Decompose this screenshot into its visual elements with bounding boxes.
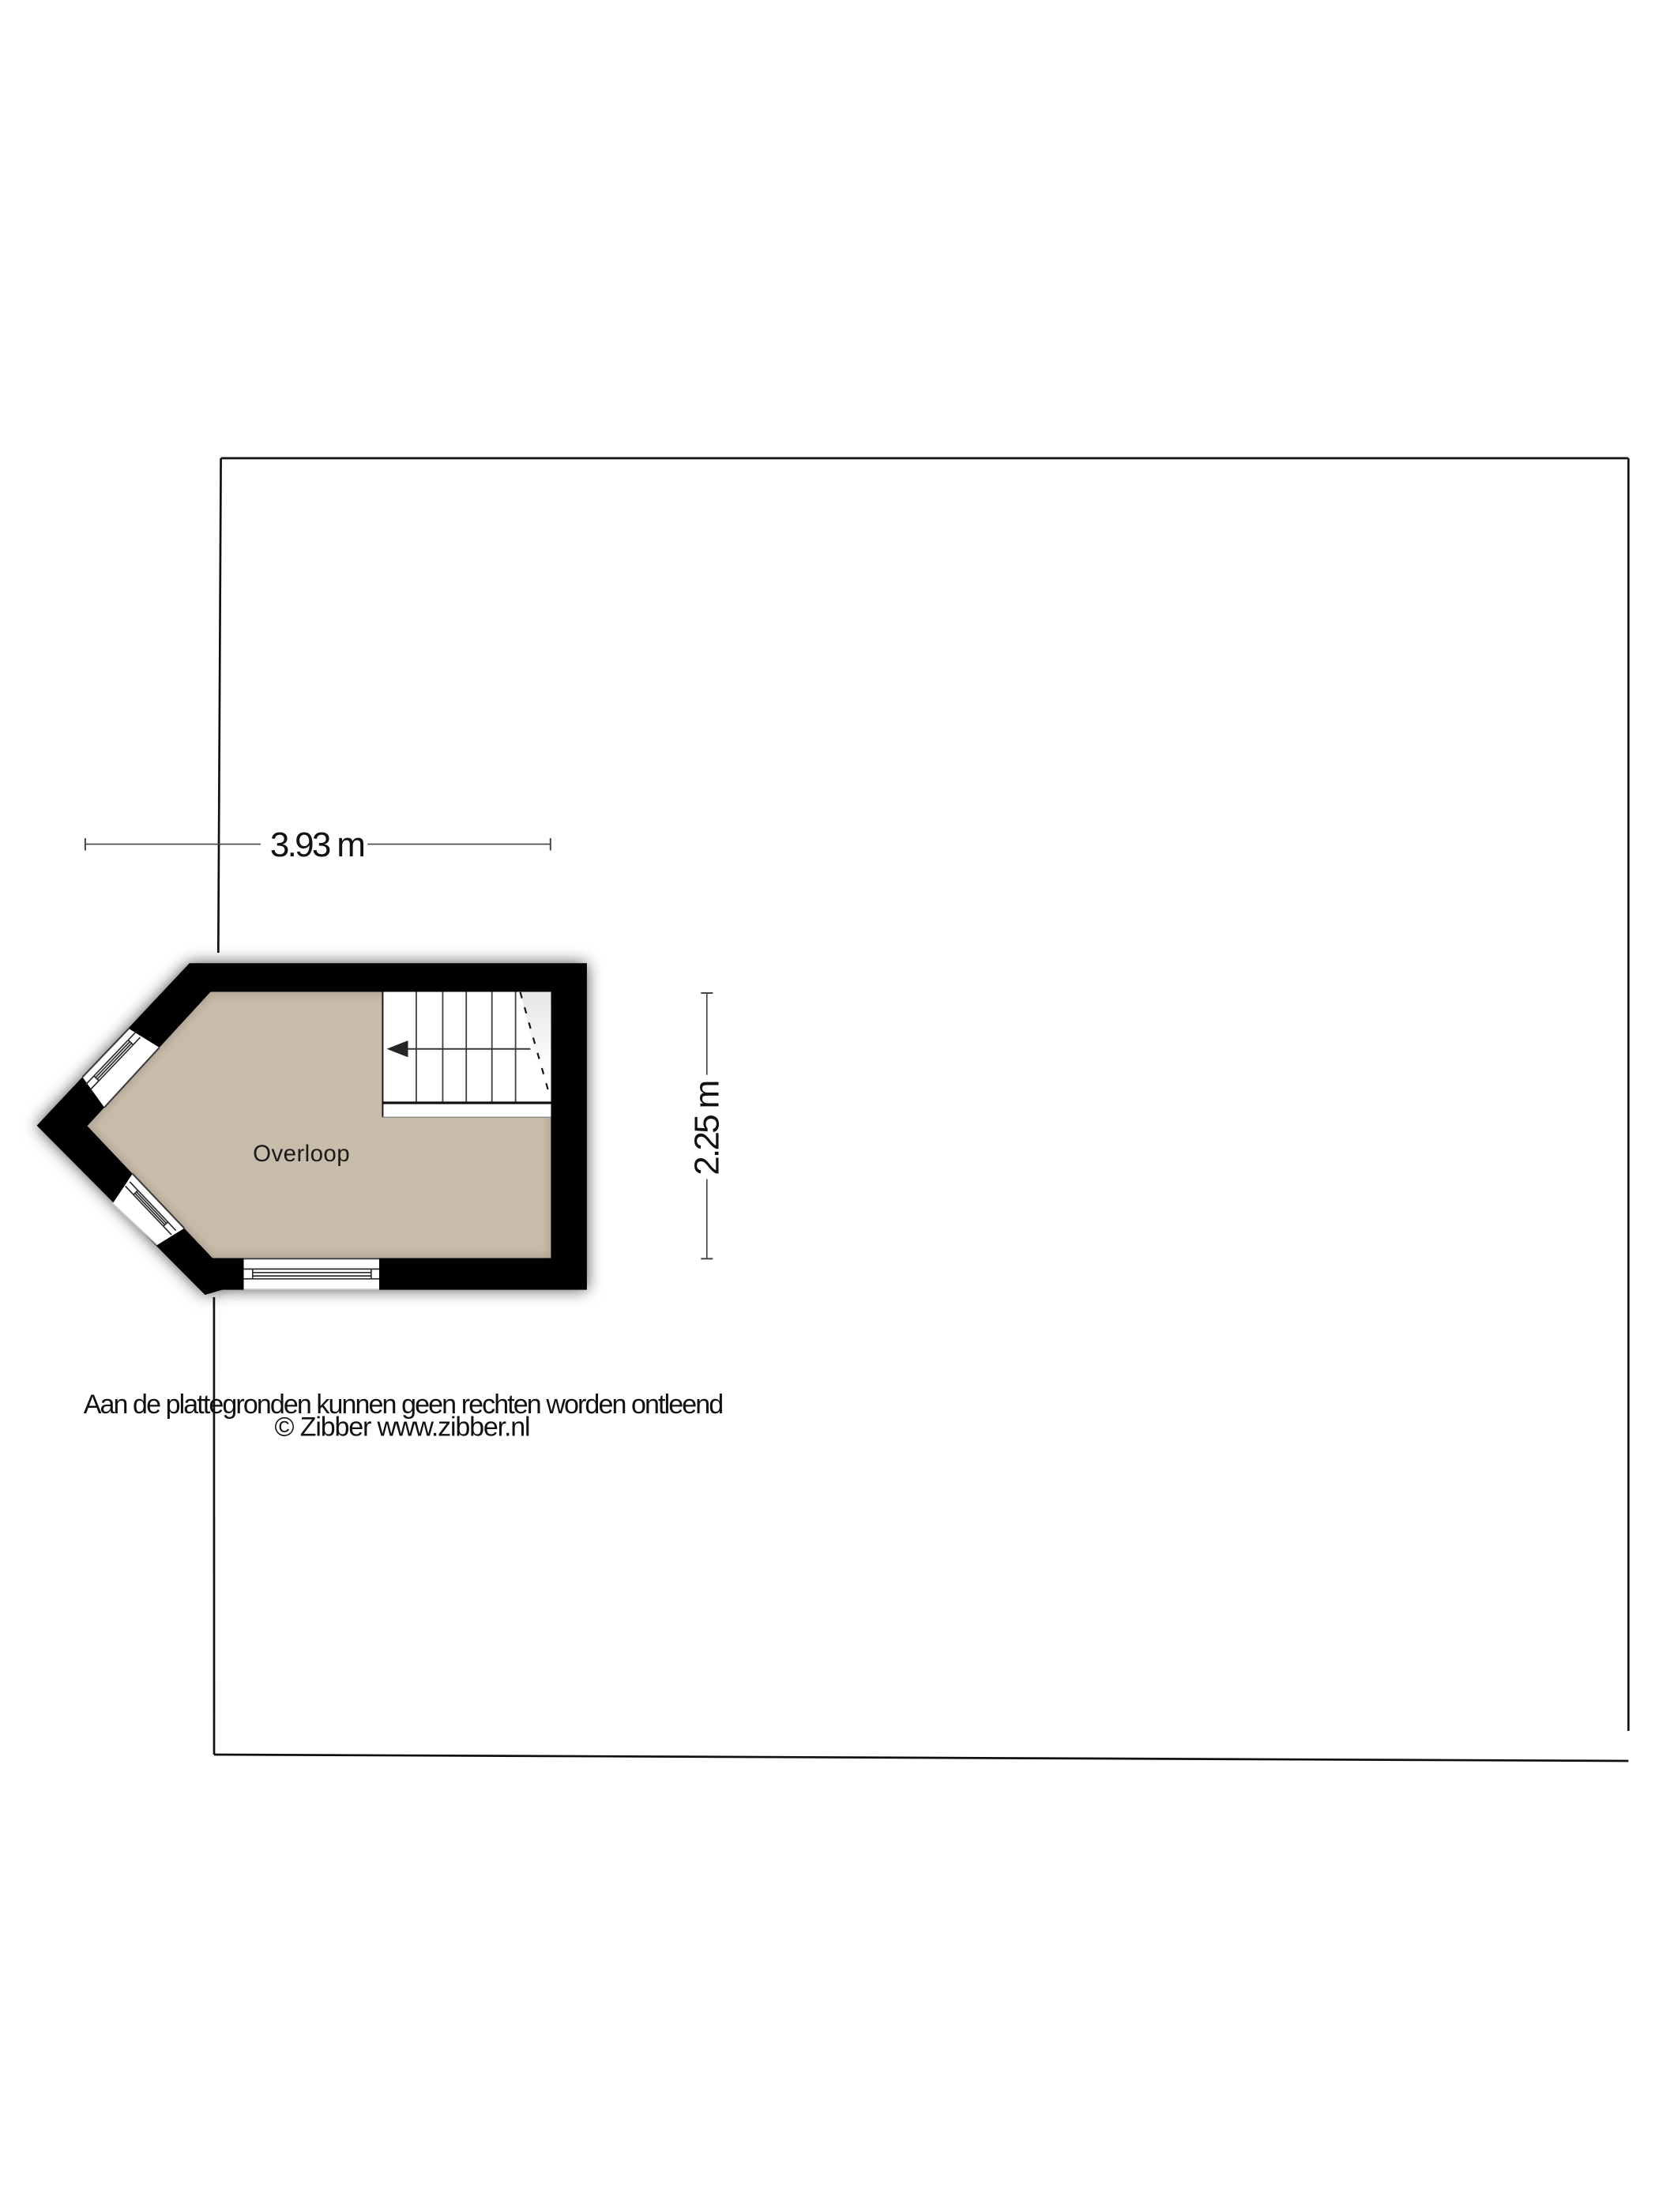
- svg-text:Overloop: Overloop: [253, 1141, 350, 1167]
- svg-text:3.93 m: 3.93 m: [270, 826, 363, 864]
- svg-text:© Zibber www.zibber.nl: © Zibber www.zibber.nl: [275, 1413, 530, 1443]
- svg-text:2.25 m: 2.25 m: [688, 1082, 727, 1175]
